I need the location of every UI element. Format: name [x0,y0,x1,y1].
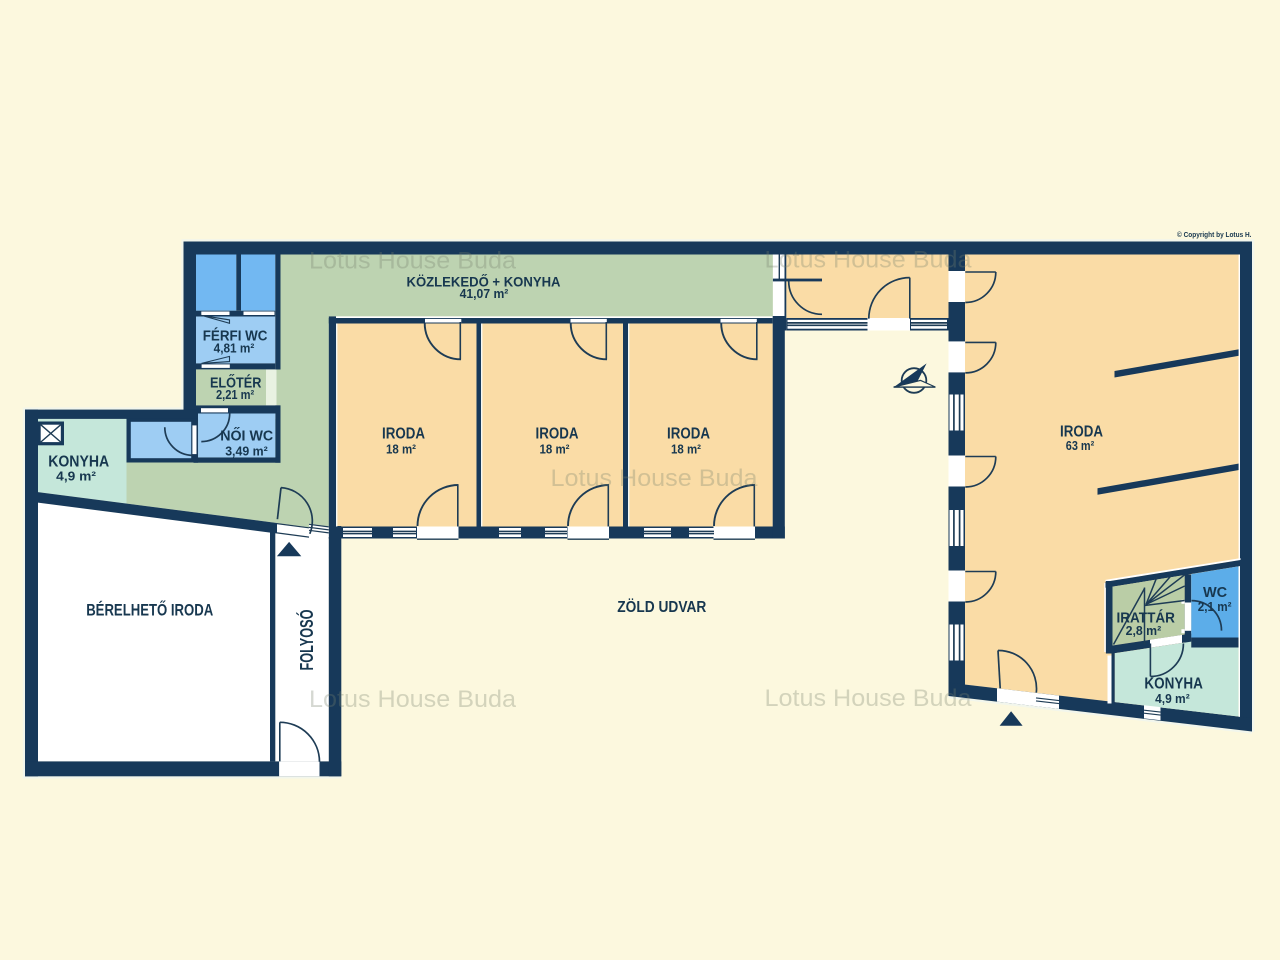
svg-text:© Copyright by Lotus H.: © Copyright by Lotus H. [1177,230,1252,239]
svg-text:4,81 m²: 4,81 m² [214,342,255,356]
svg-text:Lotus House Buda: Lotus House Buda [309,686,517,713]
svg-text:41,07 m²: 41,07 m² [460,287,509,301]
svg-text:3,49 m²: 3,49 m² [225,445,268,459]
svg-text:18 m²: 18 m² [386,441,417,456]
svg-text:BÉRELHETŐ IRODA: BÉRELHETŐ IRODA [86,601,213,620]
svg-text:18 m²: 18 m² [540,441,571,456]
svg-text:FOLYOSÓ: FOLYOSÓ [296,610,317,671]
svg-text:2,8 m²: 2,8 m² [1126,624,1162,638]
svg-text:63 m²: 63 m² [1066,438,1095,453]
svg-text:NŐI WC: NŐI WC [220,426,274,444]
svg-text:IRODA: IRODA [536,426,579,443]
svg-text:Lotus House Buda: Lotus House Buda [765,685,973,712]
svg-text:IRODA: IRODA [667,426,710,443]
svg-text:2,1 m²: 2,1 m² [1198,600,1232,614]
svg-text:WC: WC [1203,585,1228,601]
svg-text:4,9 m²: 4,9 m² [56,469,97,484]
svg-text:KONYHA: KONYHA [1144,676,1203,693]
svg-text:4,9 m²: 4,9 m² [1155,692,1190,706]
svg-text:Lotus House Buda: Lotus House Buda [765,247,973,274]
svg-text:ZÖLD UDVAR: ZÖLD UDVAR [617,599,706,616]
svg-text:Lotus House Buda: Lotus House Buda [551,465,759,492]
svg-text:Lotus House Buda: Lotus House Buda [309,247,517,274]
svg-text:18 m²: 18 m² [671,441,702,456]
svg-text:2,21 m²: 2,21 m² [216,388,254,402]
svg-text:IRODA: IRODA [382,426,425,443]
